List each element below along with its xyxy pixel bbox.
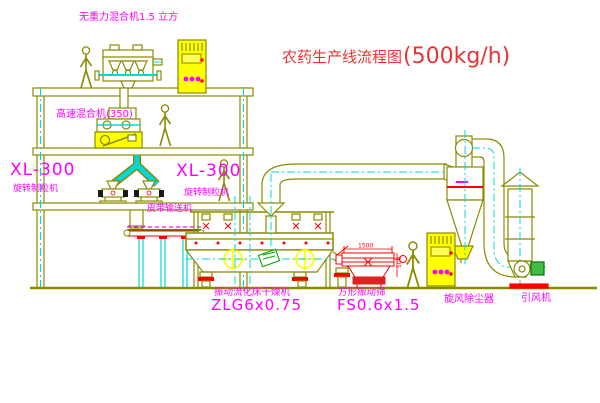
granulator-right-model: XL-300 (176, 163, 241, 180)
control-cabinet-right (427, 233, 455, 286)
label-belt-conveyor: 皮带输送机 (147, 205, 192, 214)
worker-figure (160, 105, 171, 146)
label-high-speed-mixer: 高速混合机(350) (56, 110, 133, 120)
gravity-mixer (95, 45, 162, 110)
label-cyclone: 旋风除尘器 (444, 295, 494, 305)
sieve-length-dimension: 1500 (358, 243, 373, 250)
page-title: 农药生产线流程图(500kg/h) (282, 46, 510, 68)
page-title-text: 农药生产线流程图 (282, 50, 402, 65)
granulator-left-name: 旋转制粒机 (13, 185, 58, 194)
granulator-right (134, 181, 164, 203)
granulator-left (98, 181, 128, 203)
label-sieve-model: FS0.6x1.5 (337, 298, 420, 313)
worker-figure (81, 47, 92, 88)
worker-figure (407, 242, 419, 288)
diagram-canvas: 1500 500 农药生产线流程图(500kg/h) 无重力混合机1.5 立方 … (0, 0, 600, 403)
granulator-discharge-pipe (128, 210, 145, 228)
granulator-right-name: 旋转制粒机 (184, 189, 229, 198)
induced-draft-fan (510, 261, 548, 288)
label-dryer-model: ZLG6x0.75 (211, 298, 302, 313)
granulator-left-model: XL-300 (10, 162, 75, 179)
label-fan: 引风机 (521, 294, 551, 304)
label-gravity-mixer: 无重力混合机1.5 立方 (79, 13, 178, 23)
sieve-height-dimension: 500 (396, 256, 403, 268)
control-cabinet-top (178, 40, 206, 93)
feed-chute (113, 155, 157, 184)
page-title-capacity: (500kg/h) (403, 46, 510, 68)
